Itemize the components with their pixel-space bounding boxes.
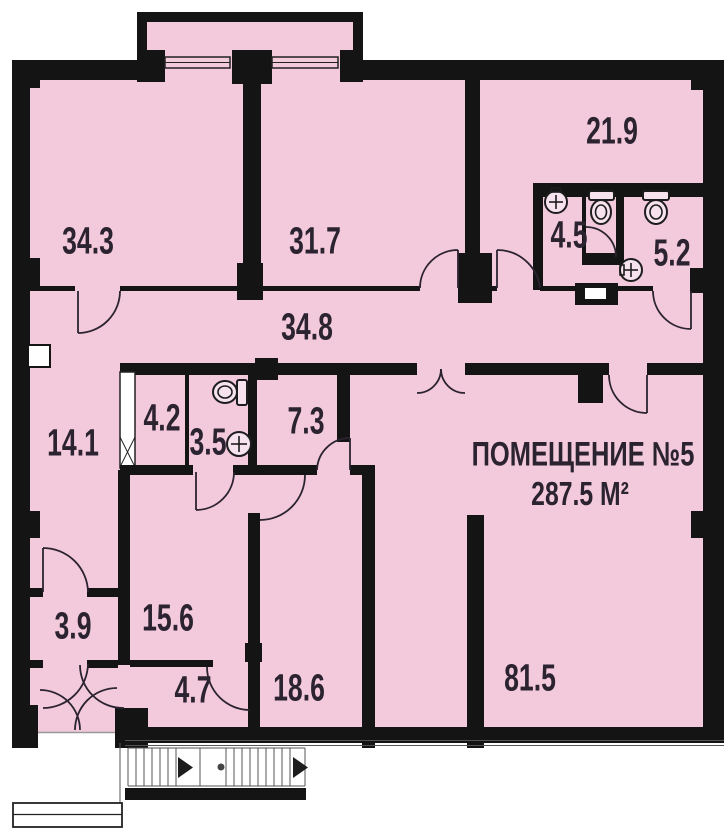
pier-34_3-31_7 (237, 263, 263, 300)
entrance-porch (13, 803, 122, 827)
wall-left-lower-end (118, 708, 130, 733)
room-area-label: 31.7 (289, 219, 341, 262)
balcony-top-wall (137, 12, 363, 22)
room-area-label: 34.3 (62, 219, 114, 262)
wall-3_9-top-right (87, 588, 120, 597)
wall-3_9-bottom-right (87, 660, 118, 668)
right-wall-pier-top (691, 60, 705, 90)
room-area-label: 4.7 (175, 668, 212, 711)
right-wall-pier-low (691, 511, 705, 538)
room-area-label: 15.6 (142, 596, 194, 639)
block-bottom-seg1 (120, 465, 193, 475)
toilet-icon (643, 191, 669, 224)
floor-plan: 34.3 31.7 21.9 4.5 5.2 34.8 14.1 4.2 3.5… (0, 0, 724, 836)
room-area-label: 3.9 (55, 604, 92, 647)
hall-wall-seg3 (465, 363, 578, 375)
wall-7_3-right (337, 372, 350, 442)
wall-stub-81_5 (467, 515, 484, 748)
sink-icon (620, 259, 642, 281)
room-area-label: 34.8 (281, 305, 333, 348)
wall-4_7-18_6 (248, 662, 260, 743)
wall-18_6-81_5 (362, 465, 375, 748)
room-area-label: 3.5 (190, 420, 227, 463)
pier-15_6 (245, 643, 262, 662)
room-area-label: 7.3 (288, 399, 325, 442)
window-left (165, 57, 230, 68)
wall-3_5-7_3 (248, 372, 257, 468)
corridor-wall-seg1 (30, 286, 75, 291)
stairs (13, 741, 724, 828)
sink-icon (227, 432, 251, 456)
room-area-label: 4.2 (144, 396, 181, 439)
stair-treads-flight2 (226, 748, 290, 786)
window-right (272, 57, 338, 68)
wall-notch (585, 288, 606, 299)
corridor-wall-seg3 (263, 286, 420, 291)
block-bottom-seg2 (233, 465, 317, 475)
left-wall-niche (28, 345, 50, 367)
wall-3_9-bottom-left (28, 660, 43, 668)
room-area-label: 18.6 (273, 666, 325, 709)
left-wall-pier-top (28, 60, 40, 88)
left-wall (12, 60, 30, 733)
corridor-wall-seg2 (120, 286, 237, 291)
stairs-landing-bar (125, 788, 306, 800)
hall-wall-pier (578, 363, 603, 403)
top-wall-right (363, 60, 724, 80)
wall-4_2-3_5 (185, 372, 189, 468)
stairs-arrow-icon (293, 757, 308, 778)
hall-wall-seg4 (603, 363, 609, 375)
right-wall (703, 60, 724, 743)
stairs-arrow-icon (178, 757, 193, 778)
room-area-label: 4.5 (551, 213, 588, 256)
room-area-label: 5.2 (654, 231, 691, 274)
hall-wall-seg5 (647, 363, 704, 375)
balcony-corner-left (137, 50, 165, 82)
toilet-icon (589, 191, 614, 224)
unit-total-area: 287.5 М² (531, 477, 629, 513)
stairs-start-dot (218, 764, 225, 771)
toilet-icon (213, 380, 247, 405)
pier-31_7-21_9 (458, 253, 492, 303)
wc-partition-2 (616, 190, 624, 263)
room-area-label: 14.1 (47, 421, 99, 464)
wall-15_6-bottom (130, 660, 213, 667)
hall-wall-block (255, 358, 278, 380)
room-area-label: 21.9 (586, 109, 638, 152)
unit-title: ПОМЕЩЕНИЕ №5 (472, 436, 695, 473)
wall-left-lower (118, 470, 130, 665)
wall-34_3-31_7 (243, 62, 261, 265)
wc-right-pier (690, 268, 713, 293)
corridor-wall-seg5 (540, 286, 578, 291)
bottom-left-foot (12, 705, 38, 748)
wall-15_6-18_6 (248, 513, 260, 660)
room-area-label: 81.5 (504, 656, 556, 699)
left-wall-pier-low (28, 511, 40, 538)
floor-plan-svg: 34.3 31.7 21.9 4.5 5.2 34.8 14.1 4.2 3.5… (0, 0, 724, 836)
shaft (120, 372, 135, 468)
balcony-corner-right (340, 50, 363, 82)
corridor-wall-seg6 (618, 286, 653, 291)
wc-block-left-wall (533, 183, 543, 290)
wall-31_7-21_9 (465, 78, 480, 255)
left-wall-pier-mid (28, 258, 40, 286)
wall-3_9-top-left (28, 588, 43, 597)
